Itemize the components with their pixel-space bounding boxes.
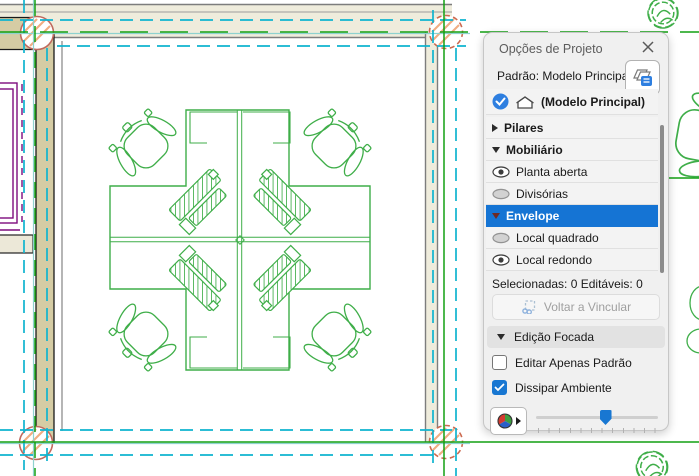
edit-primary-checkbox[interactable]: [492, 355, 507, 370]
relink-button-label: Voltar a Vincular: [544, 300, 631, 314]
default-model-label: Padrão: Modelo Principal: [497, 69, 631, 83]
plant-symbol-bottom[interactable]: [634, 449, 670, 476]
fade-slider[interactable]: [536, 409, 658, 435]
selection-status: Selecionadas: 0 Editáveis: 0: [492, 277, 643, 291]
tree-option-local-quadrado[interactable]: Local quadrado: [486, 227, 658, 249]
edge-partials[interactable]: [670, 87, 699, 353]
eye-open-icon[interactable]: [492, 254, 510, 266]
panel-title: Opções de Projeto: [499, 42, 603, 56]
house-icon: [515, 95, 535, 109]
fade-slider-thumb[interactable]: [600, 410, 612, 425]
tree-category-envelope[interactable]: Envelope: [486, 205, 658, 227]
scrollbar-thumb[interactable]: [660, 125, 664, 273]
tree-label: Envelope: [506, 209, 559, 223]
relink-icon: [521, 300, 537, 314]
fade-environment-checkbox-row[interactable]: Dissipar Ambiente: [492, 380, 612, 395]
plant-symbol-top[interactable]: [646, 0, 681, 30]
desk-cluster[interactable]: [100, 100, 380, 380]
tree-label: Divisórias: [516, 187, 568, 201]
eye-closed-icon[interactable]: [492, 232, 510, 244]
eye-open-icon[interactable]: [492, 166, 510, 178]
fade-slider-track[interactable]: [536, 416, 658, 419]
check-circle-icon: [492, 93, 509, 110]
fade-slider-ticks: [538, 428, 656, 433]
fade-environment-label: Dissipar Ambiente: [515, 381, 612, 395]
chevron-down-icon[interactable]: [497, 334, 505, 340]
tree-category-mobiliario[interactable]: Mobiliário: [486, 139, 658, 161]
focused-editing-label: Edição Focada: [514, 330, 594, 344]
design-options-dialog-icon: [631, 67, 654, 88]
tree-label: Pilares: [504, 121, 543, 135]
tree-category-pilares[interactable]: Pilares: [486, 117, 658, 139]
edit-primary-checkbox-row[interactable]: Editar Apenas Padrão: [492, 355, 632, 370]
main-model-label: (Modelo Principal): [541, 95, 645, 109]
caret-right-icon: [516, 417, 521, 425]
edit-primary-label: Editar Apenas Padrão: [515, 356, 632, 370]
chevron-down-icon[interactable]: [492, 147, 500, 153]
tree-label: Mobiliário: [506, 143, 563, 157]
tree-option-divisorias[interactable]: Divisórias: [486, 183, 658, 205]
relink-button[interactable]: Voltar a Vincular: [492, 294, 660, 320]
tree-option-local-redondo[interactable]: Local redondo: [486, 249, 658, 271]
eye-closed-icon[interactable]: [492, 188, 510, 200]
tree-label: Local redondo: [516, 253, 592, 267]
chevron-down-icon[interactable]: [492, 213, 500, 219]
design-options-panel: Opções de Projeto Padrão: Modelo Princip…: [483, 32, 669, 431]
tree-label: Local quadrado: [516, 231, 599, 245]
focused-editing-section-header[interactable]: Edição Focada: [487, 326, 665, 348]
chevron-right-icon[interactable]: [492, 124, 498, 132]
application-window: Opções de Projeto Padrão: Modelo Princip…: [0, 0, 699, 476]
color-wheel-button[interactable]: [490, 407, 527, 435]
adjacent-room-purple[interactable]: [0, 83, 22, 230]
tree-option-planta-aberta[interactable]: Planta aberta: [486, 161, 658, 183]
main-model-row[interactable]: (Modelo Principal): [486, 89, 658, 115]
check-icon: [494, 383, 505, 392]
close-icon[interactable]: [641, 40, 659, 58]
fade-environment-checkbox[interactable]: [492, 380, 507, 395]
tree-label: Planta aberta: [516, 165, 587, 179]
color-wheel-icon: [496, 412, 514, 430]
